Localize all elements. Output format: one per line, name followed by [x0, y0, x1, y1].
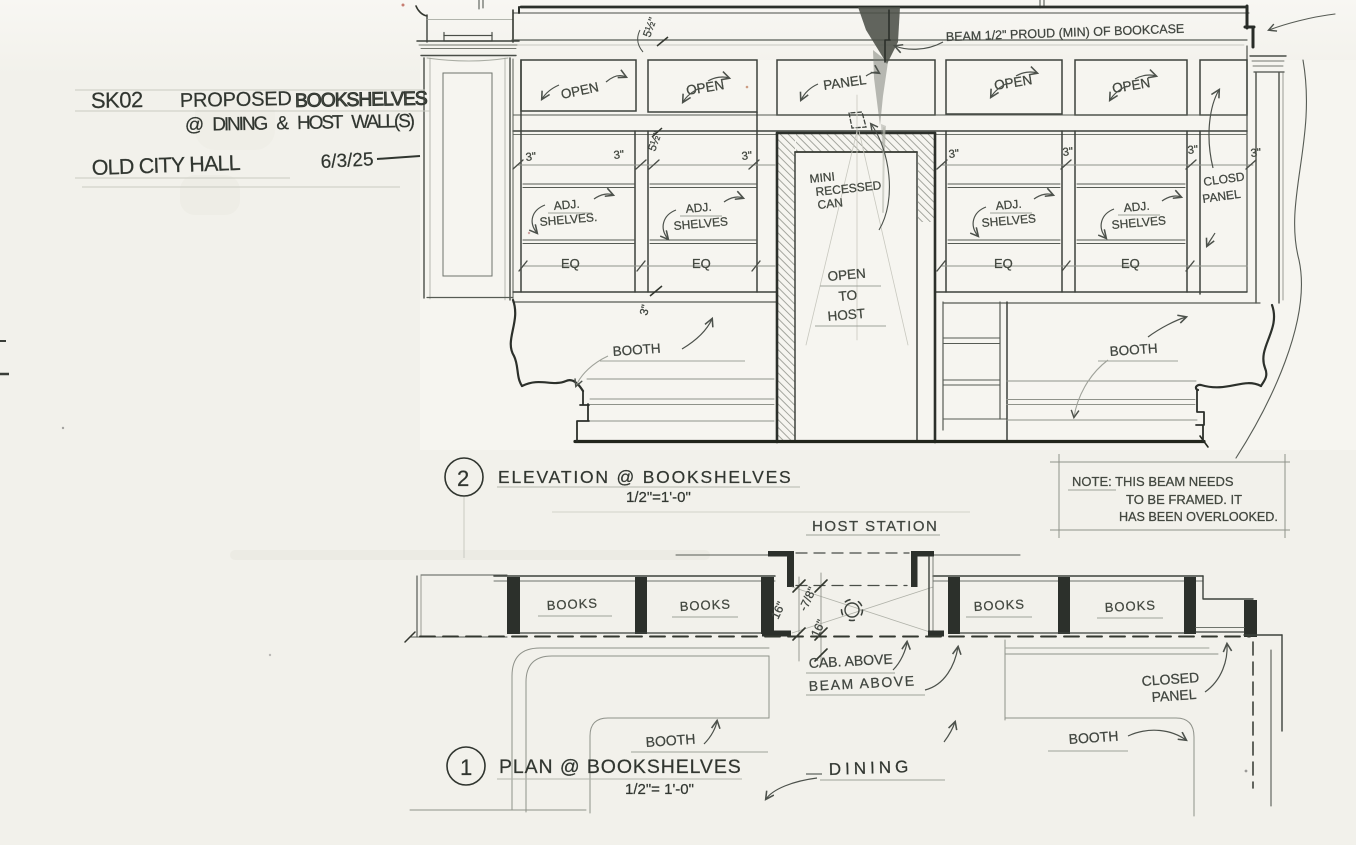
svg-text:ADJ.: ADJ.: [1123, 199, 1150, 215]
svg-text:BOOKS: BOOKS: [1104, 597, 1156, 615]
svg-text:3": 3": [948, 148, 960, 161]
svg-text:EQ: EQ: [1121, 256, 1140, 271]
svg-text:BOOKS: BOOKS: [546, 595, 598, 613]
svg-text:3": 3": [613, 149, 625, 162]
svg-text:PANEL: PANEL: [1151, 686, 1197, 705]
svg-text:2: 2: [457, 466, 469, 491]
svg-text:SK02: SK02: [91, 87, 144, 113]
svg-text:TO BE FRAMED. IT: TO BE FRAMED. IT: [1126, 492, 1242, 507]
svg-text:HOST STATION: HOST STATION: [812, 518, 938, 535]
svg-text:PLAN @ BOOKSHELVES: PLAN @ BOOKSHELVES: [499, 756, 742, 778]
svg-text:1: 1: [460, 755, 472, 780]
svg-text:EQ: EQ: [994, 256, 1013, 271]
svg-text:3": 3": [1250, 147, 1262, 160]
svg-text:ADJ.: ADJ.: [995, 197, 1022, 213]
svg-text:@ DINING & HOST WALL(S): @ DINING & HOST WALL(S): [185, 111, 415, 136]
svg-text:1/2"= 1'-0": 1/2"= 1'-0": [625, 781, 694, 798]
svg-text:HAS BEEN OVERLOOKED.: HAS BEEN OVERLOOKED.: [1119, 510, 1278, 524]
svg-text:BOOKS: BOOKS: [679, 596, 731, 614]
svg-text:DINING: DINING: [828, 757, 912, 779]
svg-text:TO: TO: [838, 287, 858, 304]
svg-text:1/2"=1'-0": 1/2"=1'-0": [626, 489, 691, 506]
svg-text:PROPOSED: PROPOSED: [180, 88, 292, 112]
svg-text:CAN: CAN: [817, 195, 844, 212]
svg-text:6/3/25: 6/3/25: [320, 149, 374, 173]
svg-text:ADJ.: ADJ.: [685, 200, 712, 216]
svg-text:EQ: EQ: [692, 256, 711, 271]
svg-text:EQ: EQ: [561, 256, 580, 271]
svg-text:NOTE: THIS BEAM NEEDS: NOTE: THIS BEAM NEEDS: [1072, 474, 1234, 489]
svg-text:BOOKSHELVES: BOOKSHELVES: [295, 88, 428, 112]
svg-text:3": 3": [1062, 146, 1074, 159]
svg-text:BOOKS: BOOKS: [973, 596, 1025, 614]
svg-text:3": 3": [741, 150, 753, 163]
svg-text:3": 3": [525, 151, 537, 164]
svg-text:ADJ.: ADJ.: [553, 197, 580, 213]
svg-text:ELEVATION @ BOOKSHELVES: ELEVATION @ BOOKSHELVES: [498, 467, 793, 487]
svg-text:3": 3": [1187, 144, 1199, 157]
